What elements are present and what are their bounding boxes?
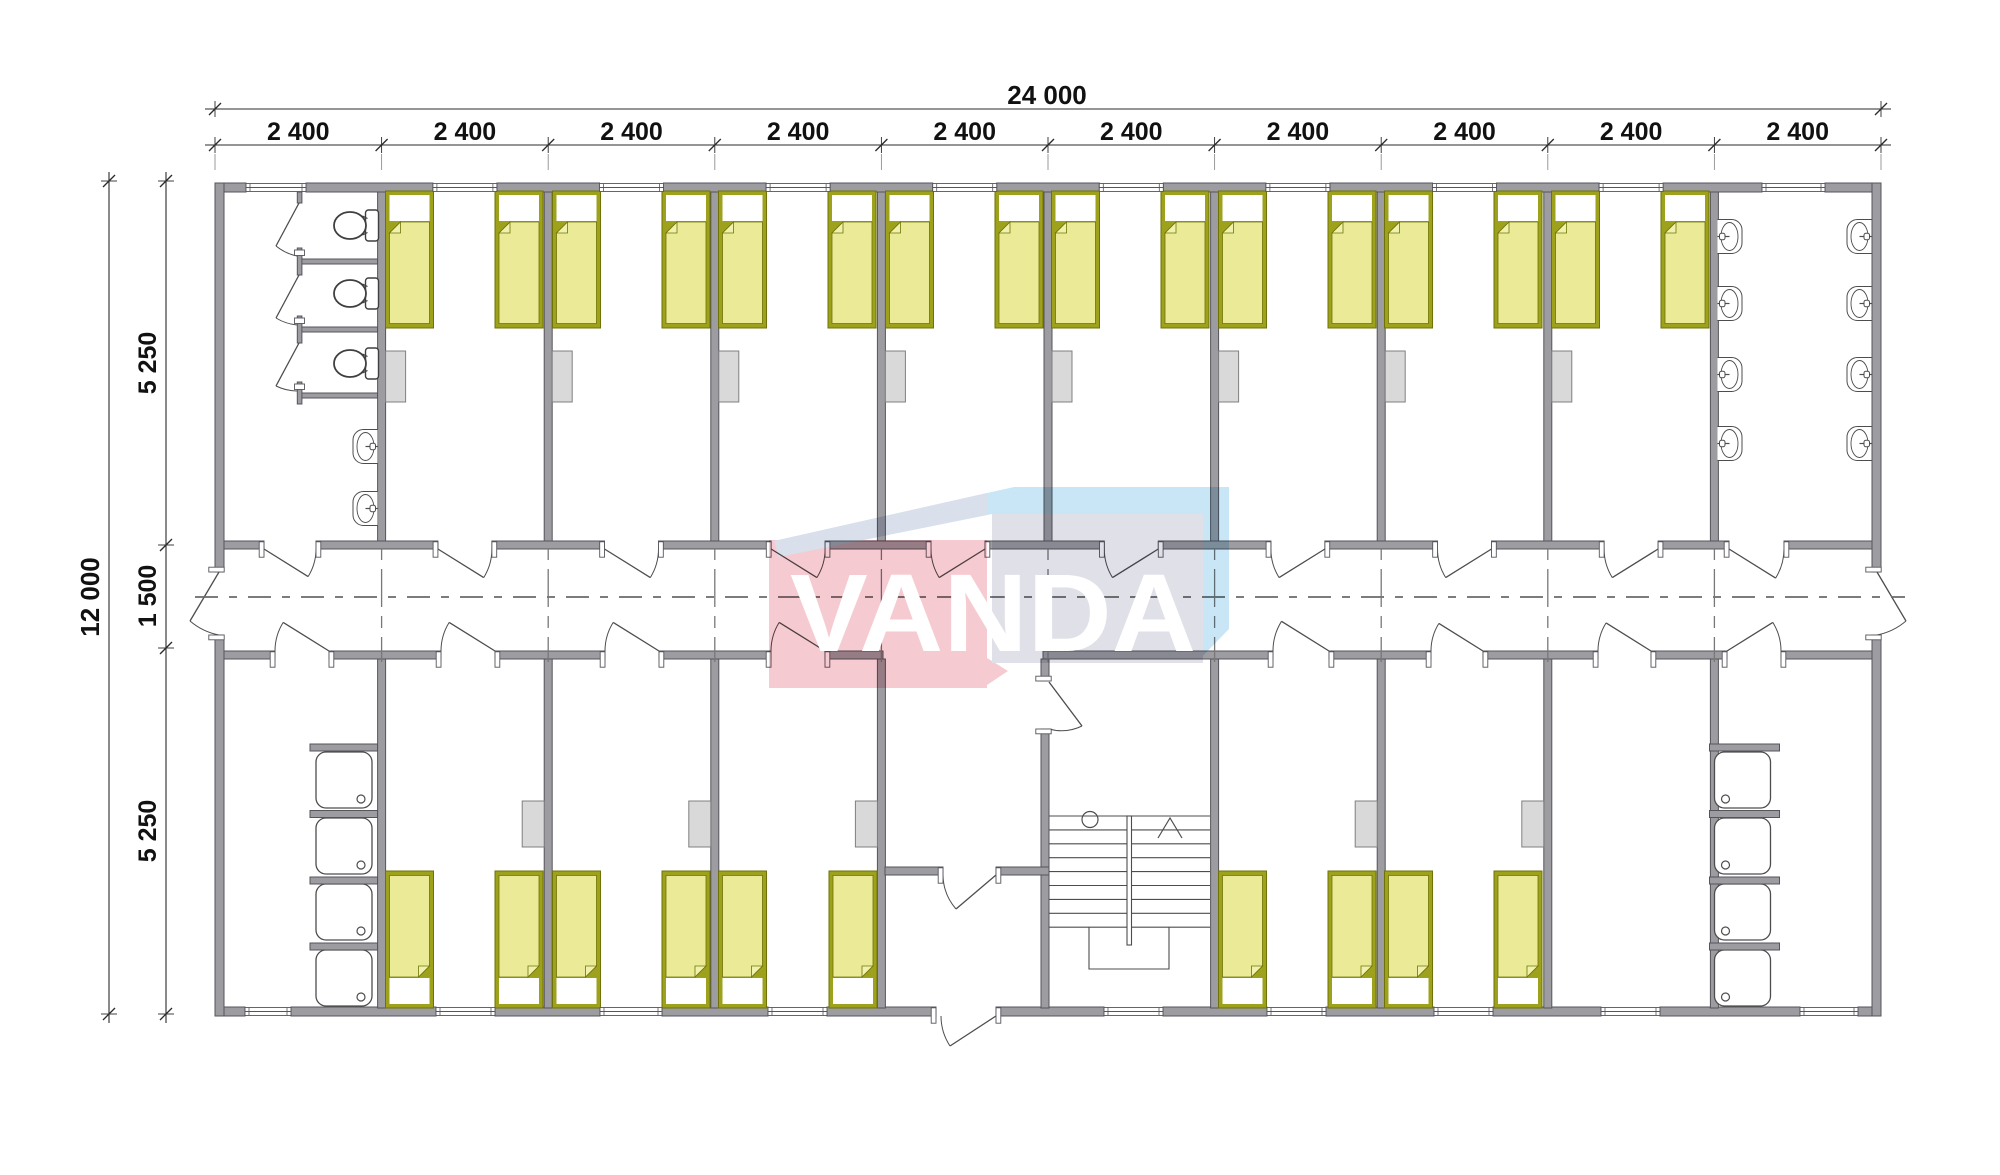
svg-text:2 400: 2 400 (1433, 118, 1496, 146)
svg-text:2 400: 2 400 (933, 118, 996, 146)
svg-text:2 400: 2 400 (434, 118, 497, 146)
svg-text:12 000: 12 000 (75, 557, 105, 637)
svg-text:1 500: 1 500 (134, 565, 162, 628)
svg-text:2 400: 2 400 (267, 118, 330, 146)
svg-text:2 400: 2 400 (600, 118, 663, 146)
svg-text:5 250: 5 250 (134, 332, 162, 395)
svg-text:24 000: 24 000 (1007, 80, 1087, 110)
svg-text:2 400: 2 400 (1600, 118, 1663, 146)
svg-text:2 400: 2 400 (767, 118, 830, 146)
svg-text:2 400: 2 400 (1100, 118, 1163, 146)
svg-text:VANDA: VANDA (790, 552, 1196, 675)
svg-text:2 400: 2 400 (1267, 118, 1330, 146)
svg-text:2 400: 2 400 (1766, 118, 1829, 146)
svg-text:5 250: 5 250 (134, 800, 162, 863)
